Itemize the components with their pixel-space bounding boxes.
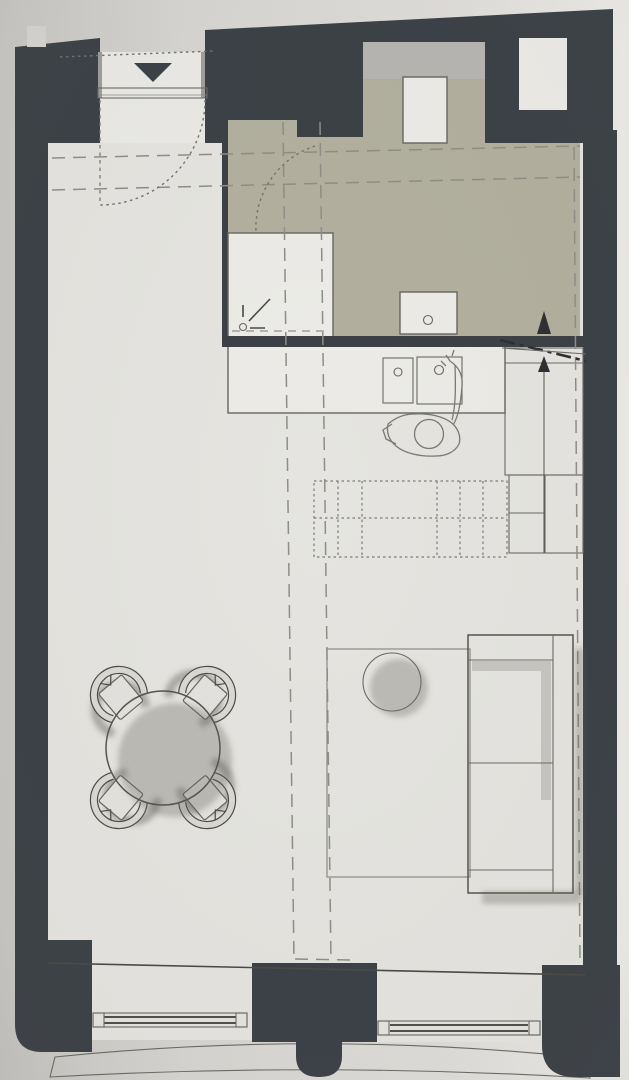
floor-plan-photo: [0, 0, 629, 1080]
floor-plan-canvas: [0, 0, 629, 1080]
photo-vignette: [0, 0, 629, 1080]
